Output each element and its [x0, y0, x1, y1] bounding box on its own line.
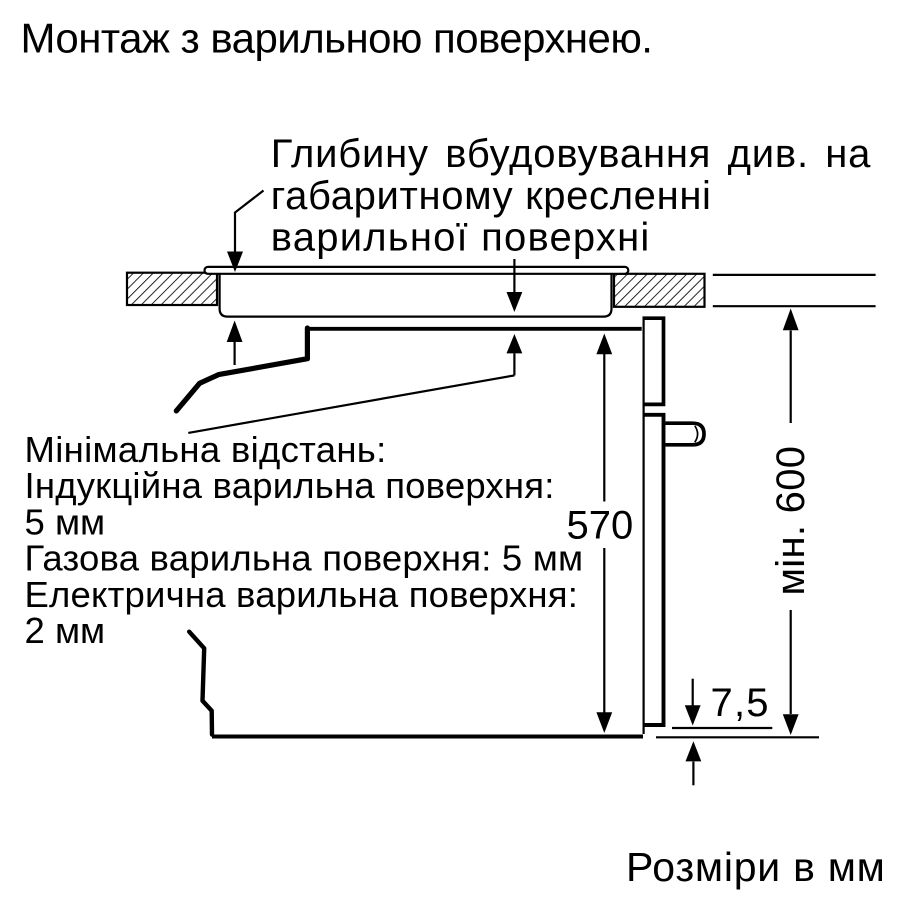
svg-text:Газова варильна поверхня: 5 мм: Газова варильна поверхня: 5 мм [25, 538, 584, 579]
svg-text:570: 570 [567, 504, 634, 548]
svg-text:мін. 600: мін. 600 [769, 446, 813, 596]
svg-text:7,5: 7,5 [711, 681, 770, 725]
svg-text:Індукційна варильна поверхня:: Індукційна варильна поверхня: [25, 465, 555, 506]
svg-text:5 мм: 5 мм [25, 501, 106, 542]
svg-text:габаритному кресленні: габаритному кресленні [271, 174, 712, 218]
svg-text:Мінімальна відстань:: Мінімальна відстань: [25, 429, 387, 470]
svg-text:Глибину вбудовування див. на: Глибину вбудовування див. на [271, 132, 871, 176]
svg-text:варильної поверхні: варильної поверхні [271, 216, 651, 260]
svg-text:2 мм: 2 мм [25, 610, 106, 651]
svg-text:Електрична варильна поверхня:: Електрична варильна поверхня: [25, 574, 579, 615]
svg-text:Монтаж з варильною поверхнею.: Монтаж з варильною поверхнею. [21, 14, 653, 61]
svg-text:Розміри в мм: Розміри в мм [626, 844, 886, 890]
